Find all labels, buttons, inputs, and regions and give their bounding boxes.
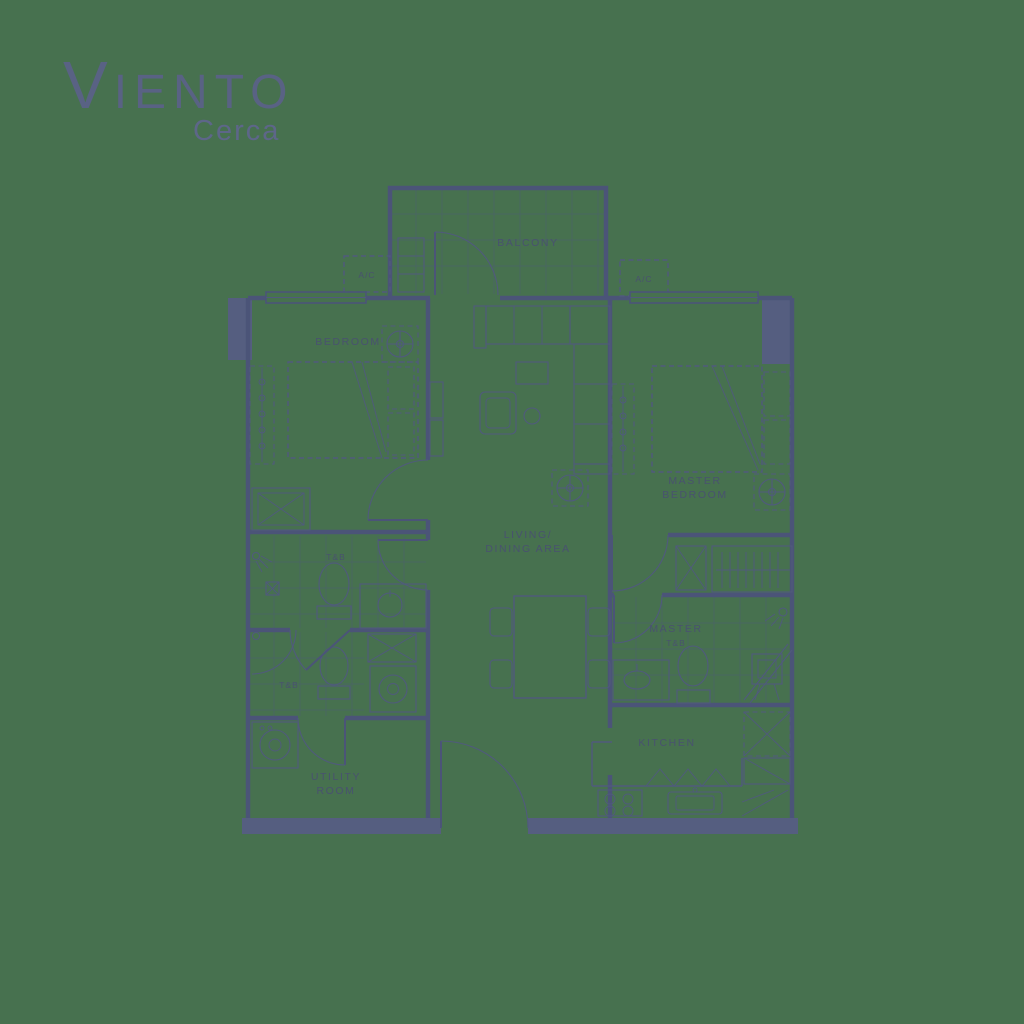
window (266, 292, 366, 303)
master-bath-label-line1: MASTER (649, 623, 702, 635)
bedroom-label: BEDROOM (315, 336, 380, 348)
ac-right-label: A/C (635, 274, 652, 284)
utility-label-line2: ROOM (316, 785, 355, 797)
sofa-icon (474, 306, 610, 474)
master-bath-door-swing (614, 595, 662, 643)
dresser-icon (252, 488, 310, 530)
washer-icon (252, 722, 298, 768)
kitchen-label: KITCHEN (638, 737, 695, 749)
master-closet (676, 546, 792, 592)
living-dining: LIVING/ DINING AREA (430, 306, 610, 698)
vanity-icon (613, 660, 669, 700)
utility-label-line1: UTILITY (311, 771, 361, 783)
dining-table-icon (490, 596, 610, 698)
tv-console-icon (430, 382, 443, 456)
bed-icon (288, 362, 418, 458)
living-label-line2: DINING AREA (485, 543, 570, 555)
master-label-line1: MASTER (668, 475, 721, 487)
ceiling-fan-icon (382, 326, 418, 362)
corner-cabinet-icon (742, 758, 790, 816)
ceiling-fan-icon (754, 474, 790, 510)
closet-icon (712, 546, 792, 592)
bedroom: BEDROOM (250, 292, 428, 530)
sink-icon (752, 654, 782, 700)
vent-shaft-icon (676, 546, 706, 590)
bottom-wall (528, 818, 798, 834)
master-bath: MASTER T&B (612, 595, 792, 703)
ac-unit-right: A/C (620, 260, 668, 296)
window (630, 292, 758, 303)
kitchen: KITCHEN (592, 712, 790, 816)
entry-door-swing (441, 741, 528, 828)
floor-plan: BALCONY A/C A/C (0, 0, 1024, 1024)
shower-icon (253, 553, 280, 596)
balcony-door-swing (435, 232, 498, 295)
ceiling-fan-icon (552, 470, 588, 506)
toilet-icon (677, 646, 710, 703)
ac-unit-left: A/C (344, 256, 390, 292)
master-door-swing (612, 535, 668, 591)
upper-cabinets (646, 769, 730, 786)
living-label-line1: LIVING/ (504, 529, 553, 541)
shower-icon (744, 608, 792, 703)
armchair-icon (480, 392, 540, 434)
bath-upper: T&B (250, 536, 428, 628)
dryer-icon (370, 666, 416, 712)
utility-door-swing (298, 718, 345, 765)
balcony-label: BALCONY (497, 237, 558, 249)
walls (228, 188, 798, 834)
vent-shaft-icon (368, 634, 416, 662)
coffee-table-icon (516, 362, 548, 384)
page: { "brand": { "initial": "V", "rest": "IE… (0, 0, 1024, 1024)
bedroom-door-swing (368, 460, 428, 520)
fridge-icon (744, 712, 790, 756)
bath-upper-label: T&B (326, 552, 346, 562)
utility-room: UTILITY ROOM (252, 718, 361, 797)
shear-wall-right (762, 298, 794, 364)
ac-left-label: A/C (358, 270, 375, 280)
planter-icon (398, 238, 424, 292)
bottom-wall (242, 818, 441, 834)
bath-lower: T&B (250, 630, 416, 716)
wardrobe-icon (250, 366, 274, 464)
sink-icon (668, 788, 722, 814)
stove-icon (598, 790, 642, 816)
wardrobe-icon (612, 384, 634, 474)
toilet-icon (317, 563, 351, 619)
master-bath-label-line2: T&B (666, 638, 686, 648)
bath-upper-door-swing (378, 540, 428, 590)
bed-icon (652, 366, 790, 472)
sink-icon (360, 584, 426, 628)
bath-lower-label: T&B (279, 680, 299, 690)
balcony: BALCONY (392, 190, 604, 295)
master-label-line2: BEDROOM (662, 489, 727, 501)
